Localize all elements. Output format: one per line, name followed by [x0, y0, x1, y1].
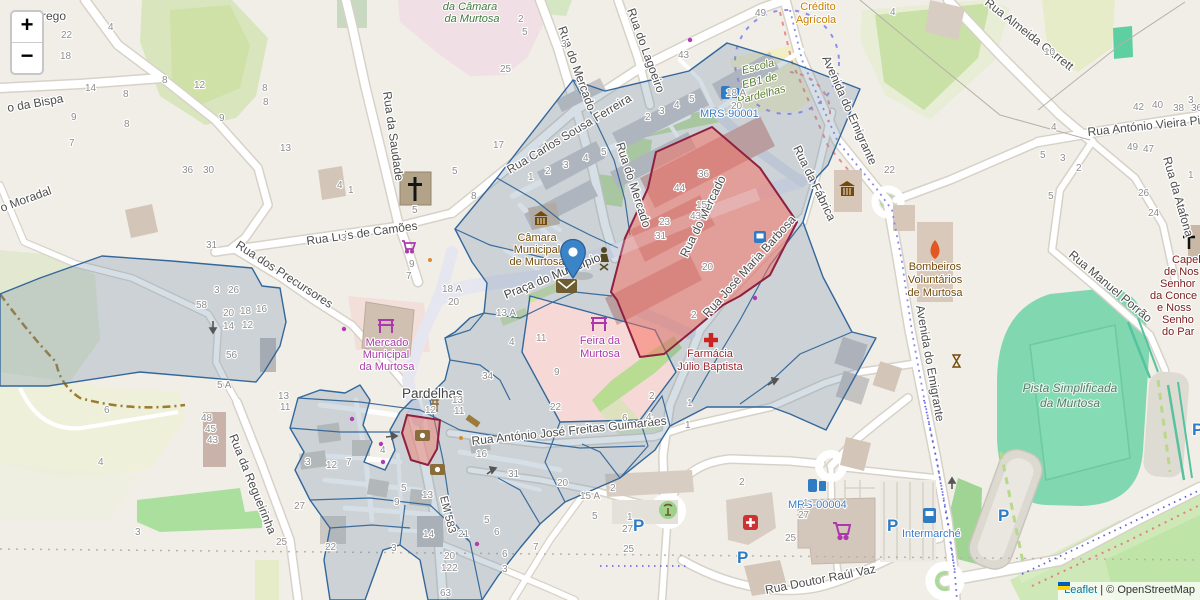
svg-text:2: 2 [545, 166, 551, 177]
svg-text:2: 2 [649, 391, 655, 402]
svg-text:Capel: Capel [1172, 254, 1200, 266]
svg-text:13: 13 [452, 395, 464, 406]
svg-text:2: 2 [1076, 163, 1082, 174]
svg-text:3: 3 [502, 564, 508, 575]
svg-text:do Par: do Par [1162, 326, 1195, 338]
svg-text:3: 3 [341, 233, 347, 244]
svg-text:14: 14 [423, 529, 435, 540]
svg-text:5: 5 [601, 147, 607, 158]
svg-text:49: 49 [1127, 142, 1139, 153]
svg-text:de Nos: de Nos [1164, 266, 1199, 278]
svg-text:e Noss: e Noss [1157, 302, 1192, 314]
svg-text:18: 18 [60, 51, 72, 62]
svg-text:7: 7 [406, 271, 412, 282]
svg-text:58: 58 [196, 300, 208, 311]
svg-text:3: 3 [563, 160, 569, 171]
svg-text:31: 31 [508, 469, 520, 480]
svg-text:18: 18 [240, 306, 252, 317]
svg-text:7: 7 [69, 138, 75, 149]
svg-text:122: 122 [441, 563, 458, 574]
svg-text:14: 14 [85, 83, 97, 94]
svg-text:6: 6 [104, 405, 110, 416]
svg-text:Crédito: Crédito [800, 1, 835, 13]
svg-text:4: 4 [890, 7, 896, 18]
svg-text:5: 5 [522, 27, 528, 38]
svg-text:8: 8 [162, 75, 168, 86]
svg-text:da Murtosa: da Murtosa [444, 13, 499, 25]
svg-text:Pista Simplificada: Pista Simplificada [1023, 381, 1118, 395]
svg-text:5: 5 [1048, 191, 1054, 202]
svg-text:1: 1 [803, 498, 809, 509]
svg-text:5 A: 5 A [217, 380, 232, 391]
svg-text:63: 63 [440, 588, 452, 599]
svg-text:Mercado: Mercado [366, 337, 409, 349]
svg-text:36: 36 [182, 165, 194, 176]
svg-text:da Murtosa: da Murtosa [1040, 396, 1100, 410]
svg-text:3: 3 [561, 39, 567, 50]
svg-text:45: 45 [205, 424, 217, 435]
svg-text:17: 17 [493, 140, 505, 151]
svg-text:20: 20 [444, 551, 456, 562]
svg-text:2: 2 [610, 483, 616, 494]
svg-text:Voluntários: Voluntários [908, 274, 963, 286]
svg-text:Feira da: Feira da [580, 335, 621, 347]
svg-text:12: 12 [425, 405, 437, 416]
svg-text:16: 16 [256, 304, 268, 315]
svg-text:25: 25 [623, 544, 635, 555]
svg-text:da Câmara: da Câmara [443, 1, 497, 13]
svg-text:1: 1 [1188, 170, 1194, 181]
svg-text:2: 2 [691, 310, 697, 321]
svg-text:Murtosa: Murtosa [580, 348, 621, 360]
svg-text:30: 30 [203, 165, 215, 176]
svg-text:3: 3 [659, 106, 665, 117]
svg-text:6: 6 [502, 549, 508, 560]
svg-text:11: 11 [280, 402, 291, 413]
svg-text:47: 47 [1143, 144, 1155, 155]
svg-text:18 A: 18 A [726, 88, 746, 99]
svg-text:20: 20 [448, 297, 460, 308]
svg-text:12: 12 [326, 460, 338, 471]
svg-text:4: 4 [380, 445, 386, 456]
svg-text:Senhor: Senhor [1160, 278, 1196, 290]
svg-text:26: 26 [1138, 188, 1150, 199]
svg-text:de Murtosa: de Murtosa [907, 287, 963, 299]
svg-text:1: 1 [685, 420, 691, 431]
svg-text:Municipal: Municipal [514, 244, 560, 256]
svg-text:20: 20 [557, 478, 569, 489]
svg-text:1: 1 [687, 398, 693, 409]
svg-text:14: 14 [223, 321, 235, 332]
svg-text:22: 22 [884, 165, 896, 176]
svg-text:27: 27 [798, 510, 810, 521]
svg-text:13: 13 [280, 143, 292, 154]
svg-text:5: 5 [484, 515, 490, 526]
svg-text:24: 24 [1148, 208, 1160, 219]
svg-text:11: 11 [536, 333, 547, 344]
svg-text:49: 49 [755, 8, 767, 19]
svg-text:2: 2 [645, 112, 651, 123]
svg-text:13: 13 [422, 490, 434, 501]
svg-text:rego: rego [42, 9, 66, 23]
svg-text:44: 44 [674, 183, 686, 194]
svg-text:3: 3 [214, 285, 220, 296]
svg-text:12: 12 [242, 320, 254, 331]
svg-text:4: 4 [108, 22, 114, 33]
svg-text:20: 20 [731, 101, 743, 112]
svg-text:1: 1 [627, 512, 633, 523]
svg-text:40: 40 [1152, 100, 1164, 111]
svg-text:2: 2 [518, 14, 524, 25]
svg-text:Intermarché: Intermarché [902, 528, 961, 540]
svg-text:9: 9 [409, 259, 415, 270]
svg-text:27: 27 [622, 524, 634, 535]
svg-text:MRS-90001: MRS-90001 [700, 108, 759, 120]
svg-text:Júlio Baptista: Júlio Baptista [677, 361, 743, 373]
svg-text:Câmara: Câmara [517, 232, 557, 244]
svg-text:22: 22 [61, 30, 73, 41]
svg-text:4: 4 [674, 100, 680, 111]
svg-text:8: 8 [263, 97, 269, 108]
svg-text:7: 7 [533, 542, 539, 553]
svg-text:8: 8 [471, 191, 477, 202]
svg-text:4: 4 [509, 337, 515, 348]
svg-text:4: 4 [337, 180, 343, 191]
svg-text:P: P [737, 548, 748, 567]
svg-text:8: 8 [124, 119, 130, 130]
svg-text:MRS-00004: MRS-00004 [788, 499, 847, 511]
svg-text:43: 43 [690, 211, 702, 222]
svg-text:5: 5 [1040, 150, 1046, 161]
svg-text:o da Bispa: o da Bispa [6, 91, 65, 115]
svg-text:56: 56 [226, 350, 238, 361]
svg-text:10: 10 [1044, 47, 1056, 58]
svg-text:5: 5 [689, 94, 695, 105]
svg-text:3: 3 [1188, 95, 1194, 106]
svg-text:20: 20 [702, 262, 714, 273]
svg-text:4: 4 [1051, 122, 1057, 133]
svg-text:P: P [887, 516, 898, 535]
svg-text:48: 48 [201, 413, 213, 424]
svg-text:13: 13 [278, 391, 290, 402]
svg-text:P: P [633, 516, 644, 535]
svg-text:31: 31 [206, 240, 218, 251]
svg-text:11: 11 [454, 406, 465, 417]
svg-text:5: 5 [452, 166, 458, 177]
svg-text:25: 25 [500, 64, 512, 75]
svg-text:31: 31 [655, 231, 667, 242]
svg-text:8: 8 [262, 83, 268, 94]
svg-text:25: 25 [276, 537, 288, 548]
svg-text:6: 6 [494, 527, 500, 538]
svg-text:22: 22 [550, 402, 562, 413]
svg-text:38: 38 [1173, 103, 1185, 114]
svg-text:7: 7 [346, 457, 352, 468]
svg-text:4: 4 [583, 153, 589, 164]
svg-text:22: 22 [325, 542, 337, 553]
svg-text:4: 4 [98, 457, 104, 468]
svg-text:Municipal: Municipal [363, 349, 409, 361]
svg-text:9: 9 [71, 112, 77, 123]
svg-text:3: 3 [391, 543, 397, 554]
svg-text:5: 5 [592, 511, 598, 522]
svg-text:Bombeiros: Bombeiros [909, 261, 962, 273]
svg-text:Rua António Vieira Pin: Rua António Vieira Pin [1087, 113, 1200, 139]
svg-text:25: 25 [785, 533, 797, 544]
svg-text:15: 15 [696, 200, 708, 211]
svg-text:27: 27 [294, 501, 306, 512]
svg-text:34: 34 [482, 371, 494, 382]
svg-text:da Conce: da Conce [1150, 290, 1197, 302]
svg-text:12: 12 [194, 80, 206, 91]
svg-text:9: 9 [394, 497, 400, 508]
svg-text:26: 26 [228, 285, 240, 296]
svg-text:15 A: 15 A [580, 491, 600, 502]
svg-text:43: 43 [678, 50, 690, 61]
svg-text:36: 36 [698, 169, 710, 180]
svg-text:3: 3 [135, 527, 141, 538]
svg-text:42: 42 [1133, 102, 1145, 113]
svg-text:Senho: Senho [1162, 314, 1194, 326]
svg-text:o Moradal: o Moradal [0, 183, 53, 214]
svg-text:9: 9 [219, 113, 225, 124]
svg-text:23: 23 [659, 217, 671, 228]
svg-text:P: P [998, 506, 1009, 525]
svg-text:3: 3 [305, 457, 311, 468]
svg-text:21: 21 [458, 529, 470, 540]
svg-text:Farmácia: Farmácia [687, 348, 734, 360]
svg-text:3: 3 [1060, 153, 1066, 164]
svg-text:16: 16 [476, 449, 488, 460]
svg-text:13 A: 13 A [496, 308, 516, 319]
svg-text:da Murtosa: da Murtosa [359, 361, 415, 373]
svg-text:Agrícola: Agrícola [796, 14, 837, 26]
svg-text:6: 6 [622, 413, 628, 424]
svg-text:de Murtosa: de Murtosa [509, 256, 565, 268]
svg-text:5: 5 [401, 483, 407, 494]
svg-text:8: 8 [123, 89, 129, 100]
svg-text:2: 2 [739, 477, 745, 488]
svg-text:18 A: 18 A [442, 284, 462, 295]
svg-text:1: 1 [528, 172, 534, 183]
svg-text:1: 1 [348, 185, 354, 196]
svg-text:43: 43 [207, 435, 219, 446]
svg-text:9: 9 [554, 367, 560, 378]
svg-text:P: P [1192, 420, 1200, 439]
svg-text:20: 20 [223, 308, 235, 319]
svg-text:4: 4 [646, 412, 652, 423]
svg-text:5: 5 [412, 205, 418, 216]
